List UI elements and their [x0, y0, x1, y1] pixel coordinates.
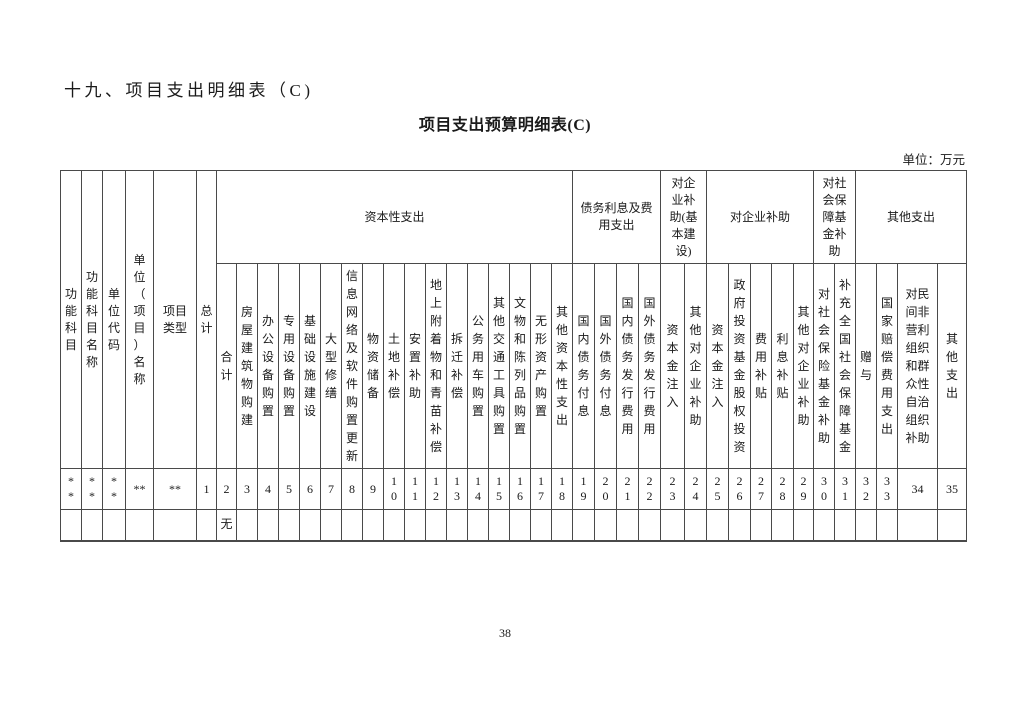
column-header: 无 形 资 产 购 置 [531, 264, 552, 469]
column-header: 国 外 债 务 付 息 [595, 264, 617, 469]
group-header: 其他支出 [856, 171, 967, 264]
data-cell [661, 510, 685, 541]
data-cell [552, 510, 573, 541]
group-header: 对企 业补 助(基 本建 设) [661, 171, 707, 264]
data-cell [258, 510, 279, 541]
data-cell: 1 2 [426, 469, 447, 510]
data-cell [531, 510, 552, 541]
column-header: 赠 与 [856, 264, 877, 469]
column-header: 办 公 设 备 购 置 [258, 264, 279, 469]
data-cell: 2 8 [772, 469, 794, 510]
column-header: 国 外 债 务 发 行 费 用 [639, 264, 661, 469]
data-cell: 6 [300, 469, 321, 510]
data-cell: 1 7 [531, 469, 552, 510]
data-cell [237, 510, 258, 541]
data-cell: 1 9 [573, 469, 595, 510]
data-cell [103, 510, 126, 541]
data-cell: 2 2 [639, 469, 661, 510]
data-cell: * * [103, 469, 126, 510]
group-header: 对企业补助 [707, 171, 814, 264]
data-cell [617, 510, 639, 541]
data-cell: ** [126, 469, 154, 510]
data-cell: 2 7 [751, 469, 772, 510]
data-cell [856, 510, 877, 541]
data-cell: 2 3 [661, 469, 685, 510]
fixed-column-header: 项目 类型 [154, 171, 197, 469]
column-header: 其 他 支 出 [938, 264, 967, 469]
column-header: 利 息 补 贴 [772, 264, 794, 469]
data-cell: 2 4 [685, 469, 707, 510]
table-row: * ** ** *****1234567891 01 11 21 31 41 5… [61, 469, 967, 510]
column-header: 费 用 补 贴 [751, 264, 772, 469]
data-cell [384, 510, 405, 541]
data-cell: 1 5 [489, 469, 510, 510]
column-header: 资 本 金 注 入 [661, 264, 685, 469]
column-header: 其 他 交 通 工 具 购 置 [489, 264, 510, 469]
data-cell: 无 [217, 510, 237, 541]
fixed-column-header: 功 能 科 目 [61, 171, 82, 469]
data-cell [126, 510, 154, 541]
column-header: 基 础 设 施 建 设 [300, 264, 321, 469]
data-cell [639, 510, 661, 541]
data-cell [685, 510, 707, 541]
column-header: 信 息 网 络 及 软 件 购 置 更 新 [342, 264, 363, 469]
data-cell [61, 510, 82, 541]
column-header: 补 充 全 国 社 会 保 障 基 金 [835, 264, 856, 469]
data-cell [489, 510, 510, 541]
data-cell: 2 0 [595, 469, 617, 510]
data-cell [468, 510, 489, 541]
column-header: 拆 迁 补 偿 [447, 264, 468, 469]
data-cell: * * [82, 469, 103, 510]
group-header: 债务利息及费 用支出 [573, 171, 661, 264]
group-header: 对社 会保 障基 金补 助 [814, 171, 856, 264]
data-cell: 2 5 [707, 469, 729, 510]
data-cell [938, 510, 967, 541]
fixed-column-header: 总 计 [197, 171, 217, 469]
unit-label: 单位：万元 [902, 149, 965, 168]
column-header: 政 府 投 资 基 金 股 权 投 资 [729, 264, 751, 469]
data-cell [342, 510, 363, 541]
data-cell [426, 510, 447, 541]
column-header: 合 计 [217, 264, 237, 469]
data-cell [321, 510, 342, 541]
column-header: 专 用 设 备 购 置 [279, 264, 300, 469]
data-cell: * * [61, 469, 82, 510]
data-cell: 3 1 [835, 469, 856, 510]
group-header: 资本性支出 [217, 171, 573, 264]
data-cell [707, 510, 729, 541]
data-cell [363, 510, 384, 541]
column-header: 资 本 金 注 入 [707, 264, 729, 469]
data-cell [197, 510, 217, 541]
data-cell: 2 1 [617, 469, 639, 510]
table-title: 项目支出预算明细表(C) [0, 111, 1010, 135]
data-cell: 3 0 [814, 469, 835, 510]
data-cell [898, 510, 938, 541]
data-cell: 1 0 [384, 469, 405, 510]
data-cell [729, 510, 751, 541]
page-number: 38 [0, 626, 1010, 641]
column-header: 国 家 赔 偿 费 用 支 出 [877, 264, 898, 469]
column-header: 房 屋 建 筑 物 购 建 [237, 264, 258, 469]
data-cell: 35 [938, 469, 967, 510]
data-cell: 1 3 [447, 469, 468, 510]
data-cell: 4 [258, 469, 279, 510]
document-page: 十九、项目支出明细表（C) 项目支出预算明细表(C) 单位：万元 功 能 科 目… [0, 0, 1010, 714]
data-cell: 9 [363, 469, 384, 510]
column-header: 对民 间非 营利 组织 和群 众性 自治 组织 补助 [898, 264, 938, 469]
column-header: 安 置 补 助 [405, 264, 426, 469]
data-cell: ** [154, 469, 197, 510]
data-cell: 2 [217, 469, 237, 510]
fixed-column-header: 单 位 （ 项 目 ） 名 称 [126, 171, 154, 469]
data-cell [573, 510, 595, 541]
fixed-column-header: 单 位 代 码 [103, 171, 126, 469]
data-cell [510, 510, 531, 541]
data-cell [751, 510, 772, 541]
data-cell: 2 6 [729, 469, 751, 510]
data-cell [794, 510, 814, 541]
column-header: 其 他 对 企 业 补 助 [685, 264, 707, 469]
column-header: 地 上 附 着 物 和 青 苗 补 偿 [426, 264, 447, 469]
column-header: 其 他 资 本 性 支 出 [552, 264, 573, 469]
budget-table: 功 能 科 目功 能 科 目 名 称单 位 代 码单 位 （ 项 目 ） 名 称… [60, 170, 967, 542]
data-cell [877, 510, 898, 541]
column-header: 物 资 储 备 [363, 264, 384, 469]
data-cell [595, 510, 617, 541]
column-header: 文 物 和 陈 列 品 购 置 [510, 264, 531, 469]
data-cell: 1 1 [405, 469, 426, 510]
data-cell [835, 510, 856, 541]
data-cell: 8 [342, 469, 363, 510]
column-header: 国 内 债 务 付 息 [573, 264, 595, 469]
data-cell [405, 510, 426, 541]
data-cell: 7 [321, 469, 342, 510]
section-title: 十九、项目支出明细表（C) [64, 76, 314, 101]
column-header: 国 内 债 务 发 行 费 用 [617, 264, 639, 469]
data-cell [772, 510, 794, 541]
column-header: 公 务 用 车 购 置 [468, 264, 489, 469]
data-cell [154, 510, 197, 541]
table-row: 无 [61, 510, 967, 541]
data-cell [447, 510, 468, 541]
column-header: 大 型 修 缮 [321, 264, 342, 469]
data-cell [300, 510, 321, 541]
column-header: 对 社 会 保 险 基 金 补 助 [814, 264, 835, 469]
data-cell [82, 510, 103, 541]
data-cell [279, 510, 300, 541]
data-cell: 1 8 [552, 469, 573, 510]
fixed-column-header: 功 能 科 目 名 称 [82, 171, 103, 469]
data-cell: 3 [237, 469, 258, 510]
data-cell: 3 3 [877, 469, 898, 510]
data-cell: 5 [279, 469, 300, 510]
column-header: 其 他 对 企 业 补 助 [794, 264, 814, 469]
data-cell: 1 4 [468, 469, 489, 510]
data-cell: 1 6 [510, 469, 531, 510]
data-cell: 34 [898, 469, 938, 510]
data-cell: 2 9 [794, 469, 814, 510]
data-cell: 1 [197, 469, 217, 510]
data-cell [814, 510, 835, 541]
data-cell: 3 2 [856, 469, 877, 510]
column-header: 土 地 补 偿 [384, 264, 405, 469]
